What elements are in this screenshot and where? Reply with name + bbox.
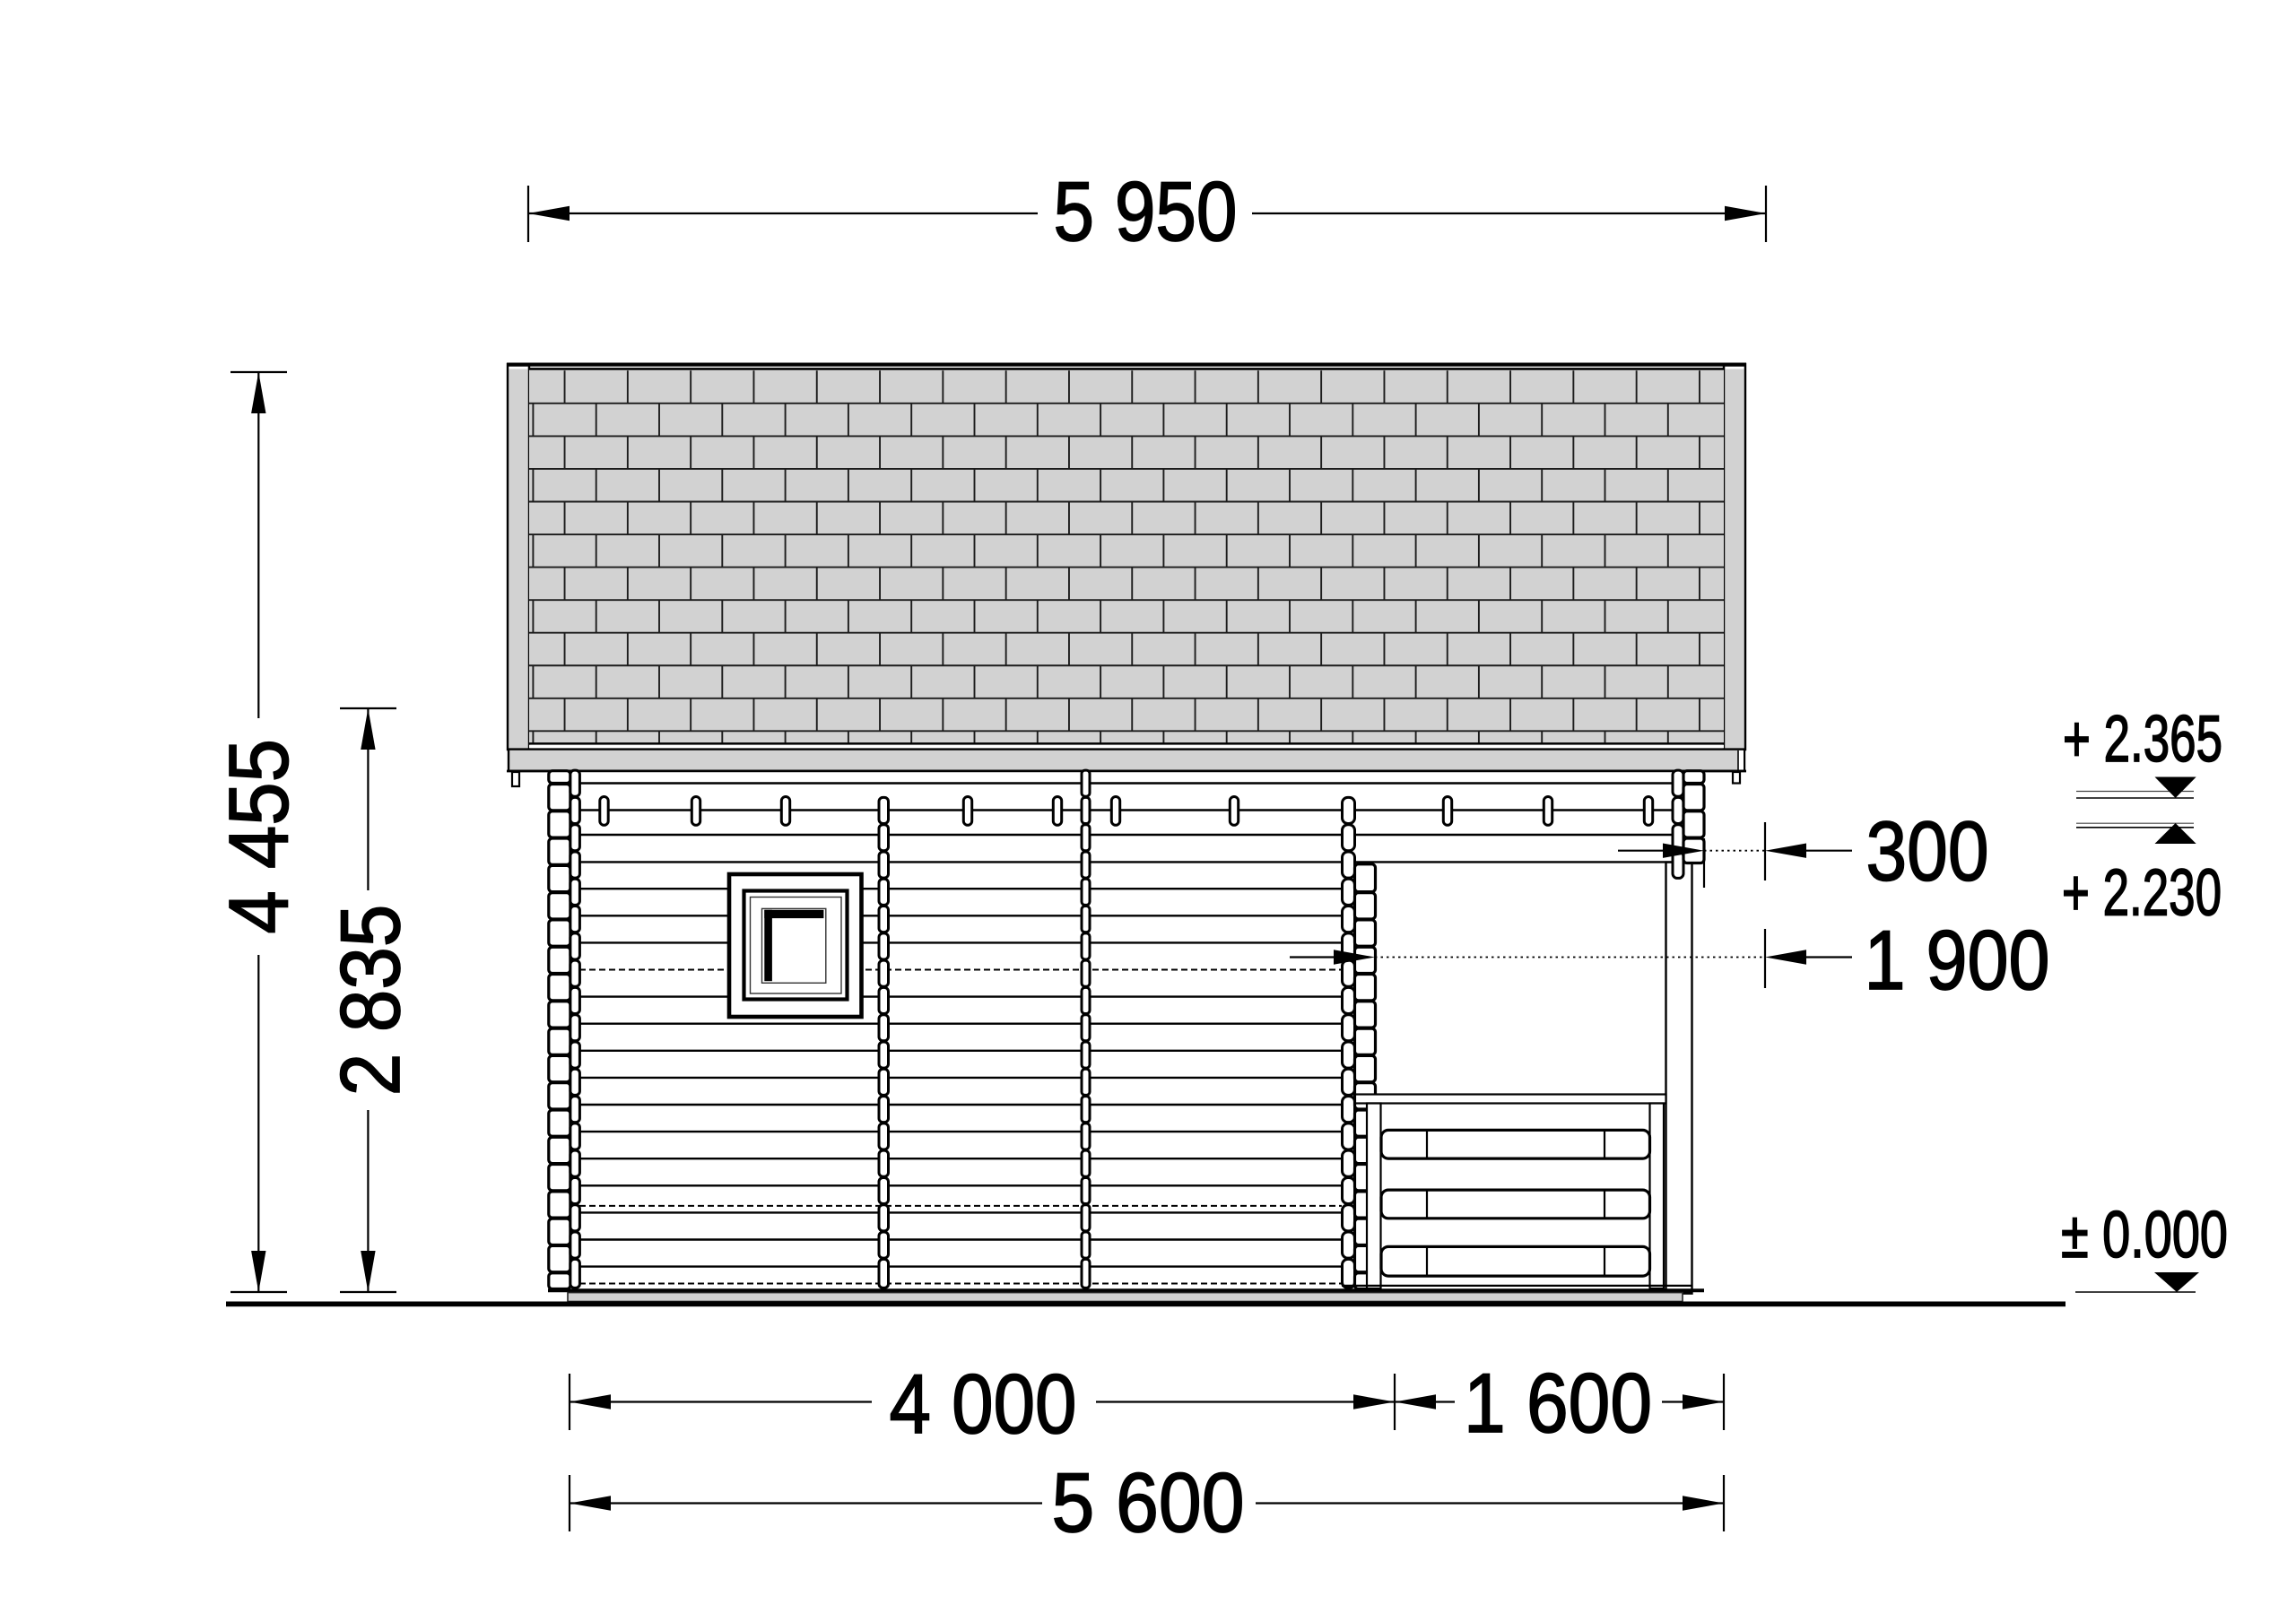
svg-text:1 900: 1 900 — [1865, 913, 2050, 1007]
svg-text:+ 2.365: + 2.365 — [2063, 703, 2222, 776]
svg-text:4 455: 4 455 — [211, 739, 305, 934]
svg-text:1 600: 1 600 — [1464, 1356, 1652, 1450]
svg-text:4 000: 4 000 — [890, 1357, 1077, 1451]
svg-text:+ 2.230: + 2.230 — [2062, 857, 2222, 930]
svg-text:5 950: 5 950 — [1054, 164, 1238, 258]
svg-text:5 600: 5 600 — [1052, 1455, 1245, 1549]
svg-text:300: 300 — [1866, 803, 1989, 898]
svg-text:± 0.000: ± 0.000 — [2061, 1199, 2228, 1271]
svg-text:2 835: 2 835 — [323, 905, 417, 1097]
